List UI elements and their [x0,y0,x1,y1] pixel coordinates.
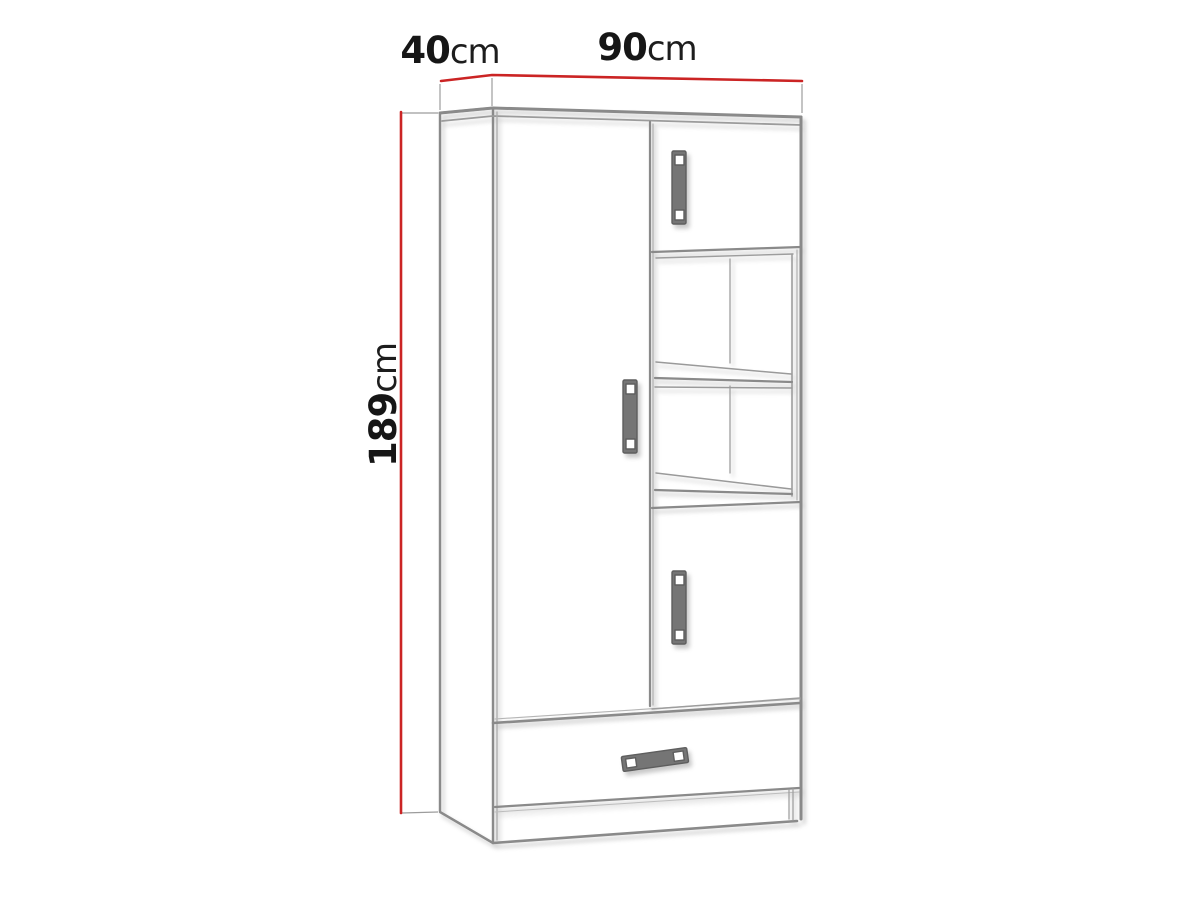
width-unit: cm [647,29,697,69]
handles-group [621,151,688,772]
niche-bottom-front-edge [655,490,792,494]
top-slab-bottom-edge [442,116,801,125]
width-dimension-label: 90cm [572,27,722,69]
width-depth-dimension-line [441,75,802,81]
bottom-door-top-edge [652,502,801,508]
bottom-door-handle [672,571,686,644]
plinth-bottom-edge [493,821,797,843]
shelf-thickness-edge [655,387,792,388]
height-unit: cm [365,343,405,393]
width-value: 90 [597,26,647,69]
left-door-handle [623,380,637,453]
depth-value: 40 [400,29,450,72]
shelf-back-edge [656,362,791,374]
drawer-top-edge [493,703,800,723]
plinth-gap-line [495,792,799,812]
wardrobe-dimension-diagram: 40cm 90cm 189cm [0,0,1200,900]
wardrobe-drawing [440,108,801,843]
side-bottom-edge [440,812,493,843]
height-value: 189 [362,393,405,467]
shelf-front-edge [655,378,792,382]
niche-bottom-back-edge [656,473,791,489]
wardrobe-drawing-canvas [0,0,1200,900]
top-door-bottom-edge [652,247,801,252]
side-panel [440,108,493,843]
drawer-handle [621,747,688,771]
height-bottom-extension [402,812,438,813]
height-dimension-label: 189cm [363,325,405,485]
niche-inner-top-edge [656,254,793,258]
depth-unit: cm [450,32,500,72]
top-door-handle [672,151,686,224]
drawer-bottom-edge [495,788,799,807]
depth-dimension-label: 40cm [375,30,525,72]
